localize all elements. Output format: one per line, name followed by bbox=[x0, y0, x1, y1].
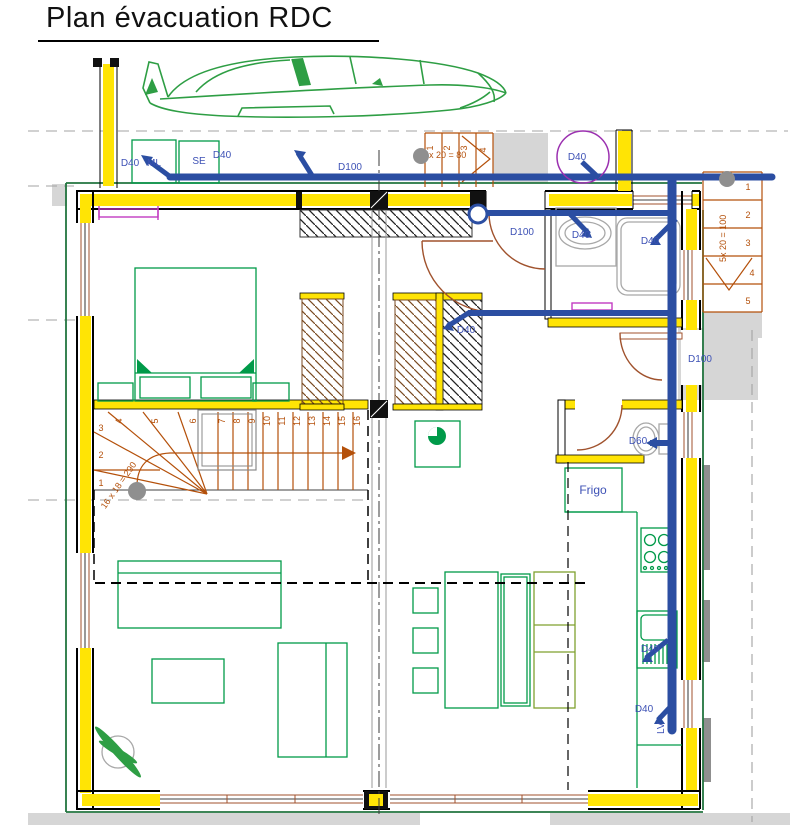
terrace-paving-left bbox=[28, 813, 420, 825]
pillow bbox=[201, 377, 251, 398]
floor-plan: 1 2 3 4 4x 20 = 80 1 2 3 4 5 5x 20 = 100 bbox=[0, 0, 791, 825]
living-room bbox=[92, 561, 347, 780]
chair bbox=[413, 628, 438, 653]
sideboard bbox=[118, 561, 281, 628]
dryer-name-label: SE bbox=[192, 156, 206, 167]
step-number: 6 bbox=[188, 418, 198, 423]
step-number: 1 bbox=[745, 182, 750, 192]
wc-label: D60 bbox=[629, 436, 648, 447]
side-stairs-landing bbox=[703, 312, 762, 338]
wc-south-wall bbox=[556, 455, 644, 463]
basin-label: D40 bbox=[572, 230, 591, 241]
dishwasher-name-label: LV bbox=[656, 722, 667, 734]
bathroom-west-wall bbox=[545, 209, 551, 319]
living-bay-window bbox=[160, 790, 363, 811]
porch-wall bbox=[618, 131, 631, 191]
roof-vent-label: D40 bbox=[568, 152, 587, 163]
living-window bbox=[76, 553, 95, 648]
step-number: 10 bbox=[262, 416, 272, 426]
step-number: 5 bbox=[150, 418, 160, 423]
wc-west-wall bbox=[558, 400, 565, 463]
washer-diam-label: D40 bbox=[121, 158, 140, 169]
wc-door-opening bbox=[575, 399, 622, 410]
step-number: 14 bbox=[322, 416, 332, 426]
dining-table bbox=[445, 572, 498, 708]
step-number: 11 bbox=[277, 416, 287, 425]
step-number: 3 bbox=[745, 238, 750, 248]
sofa bbox=[278, 643, 347, 757]
step-number: 12 bbox=[292, 416, 302, 426]
dryer-diam-label: D40 bbox=[213, 150, 232, 161]
chair bbox=[413, 588, 438, 613]
bench bbox=[501, 574, 530, 706]
pipe-labels: D40 ML SE D40 D100 D40 D100 D40 D40 D40 … bbox=[121, 150, 713, 734]
stair-direction-arrow bbox=[706, 258, 752, 290]
shower-label: D40 bbox=[641, 236, 660, 247]
entry-window-opening bbox=[633, 190, 692, 211]
step-number: 4 bbox=[114, 418, 124, 423]
pipe-riser bbox=[469, 205, 487, 223]
step-number: 1 bbox=[98, 478, 103, 488]
towel-bench bbox=[572, 303, 612, 310]
wall-shadow bbox=[703, 718, 711, 782]
fridge-label: Frigo bbox=[579, 483, 607, 497]
step-number: 2 bbox=[98, 450, 103, 460]
plant bbox=[92, 724, 144, 781]
page-title: Plan évacuation RDC bbox=[38, 2, 379, 42]
step-number: 15 bbox=[337, 416, 347, 426]
bathroom bbox=[556, 208, 680, 314]
floor-drain bbox=[415, 421, 460, 467]
bedroom bbox=[98, 206, 289, 401]
sheet-fold bbox=[137, 359, 152, 373]
nightstand bbox=[98, 383, 133, 401]
step-number: 8 bbox=[232, 418, 242, 423]
washer-name-label: ML bbox=[147, 158, 161, 169]
radiator bbox=[99, 209, 158, 217]
step-number: 9 bbox=[247, 418, 257, 423]
car-mirror bbox=[372, 78, 383, 86]
cooktop bbox=[641, 528, 672, 572]
step-number: 13 bbox=[307, 416, 317, 426]
chair bbox=[413, 668, 438, 693]
carport-door bbox=[489, 213, 545, 269]
dining bbox=[413, 572, 575, 708]
stair-formula: 4x 20 = 80 bbox=[424, 150, 466, 160]
step-number: 2 bbox=[745, 210, 750, 220]
walking-line-arrow bbox=[342, 446, 356, 460]
sheet-fold bbox=[239, 359, 254, 373]
hall-closet bbox=[395, 300, 436, 404]
step-number: 16 bbox=[352, 416, 362, 426]
dining-bay-window bbox=[390, 790, 588, 811]
newel-post bbox=[128, 482, 146, 500]
step-number: 5 bbox=[745, 296, 750, 306]
step-number: 4 bbox=[478, 147, 488, 152]
exterior-stack-label: D100 bbox=[688, 354, 712, 365]
step-number: 3 bbox=[98, 423, 103, 433]
main-collector-label: D100 bbox=[338, 162, 362, 173]
pipe-connector bbox=[719, 171, 735, 187]
kitchen-sink-label: D40 bbox=[641, 644, 660, 655]
banquette bbox=[534, 572, 575, 708]
dashed-lines bbox=[94, 410, 588, 790]
bedroom-closet bbox=[302, 299, 343, 404]
kitchen bbox=[565, 468, 682, 788]
wc-door bbox=[577, 405, 622, 450]
carport-door-opening bbox=[486, 190, 545, 211]
bedroom-window bbox=[76, 223, 95, 316]
coffee-table bbox=[152, 659, 224, 703]
interior-staircase: 1 2 3 4 5 6 7 8 9 10 11 12 13 14 15 16 1… bbox=[94, 410, 368, 511]
car bbox=[143, 56, 506, 117]
step-number: 7 bbox=[217, 418, 227, 423]
hall-branch-label: D100 bbox=[510, 227, 534, 238]
closet-duct-label: D40 bbox=[457, 325, 476, 336]
pillar-base bbox=[52, 184, 67, 206]
stair-formula: 5x 20 = 100 bbox=[718, 215, 728, 262]
nightstand bbox=[253, 383, 289, 401]
dishwasher-diam-label: D40 bbox=[635, 704, 654, 715]
bathroom-south-wall bbox=[548, 318, 682, 327]
terrace-paving-right bbox=[550, 813, 790, 825]
hall-door bbox=[620, 333, 662, 380]
site-boundary bbox=[66, 183, 703, 812]
bed bbox=[135, 268, 256, 401]
step-number: 4 bbox=[749, 268, 754, 278]
pillow bbox=[140, 377, 190, 398]
car-pillar bbox=[292, 58, 311, 86]
pipe-connector bbox=[413, 148, 429, 164]
side-stairs: 1 2 3 4 5 5x 20 = 100 bbox=[703, 172, 762, 312]
